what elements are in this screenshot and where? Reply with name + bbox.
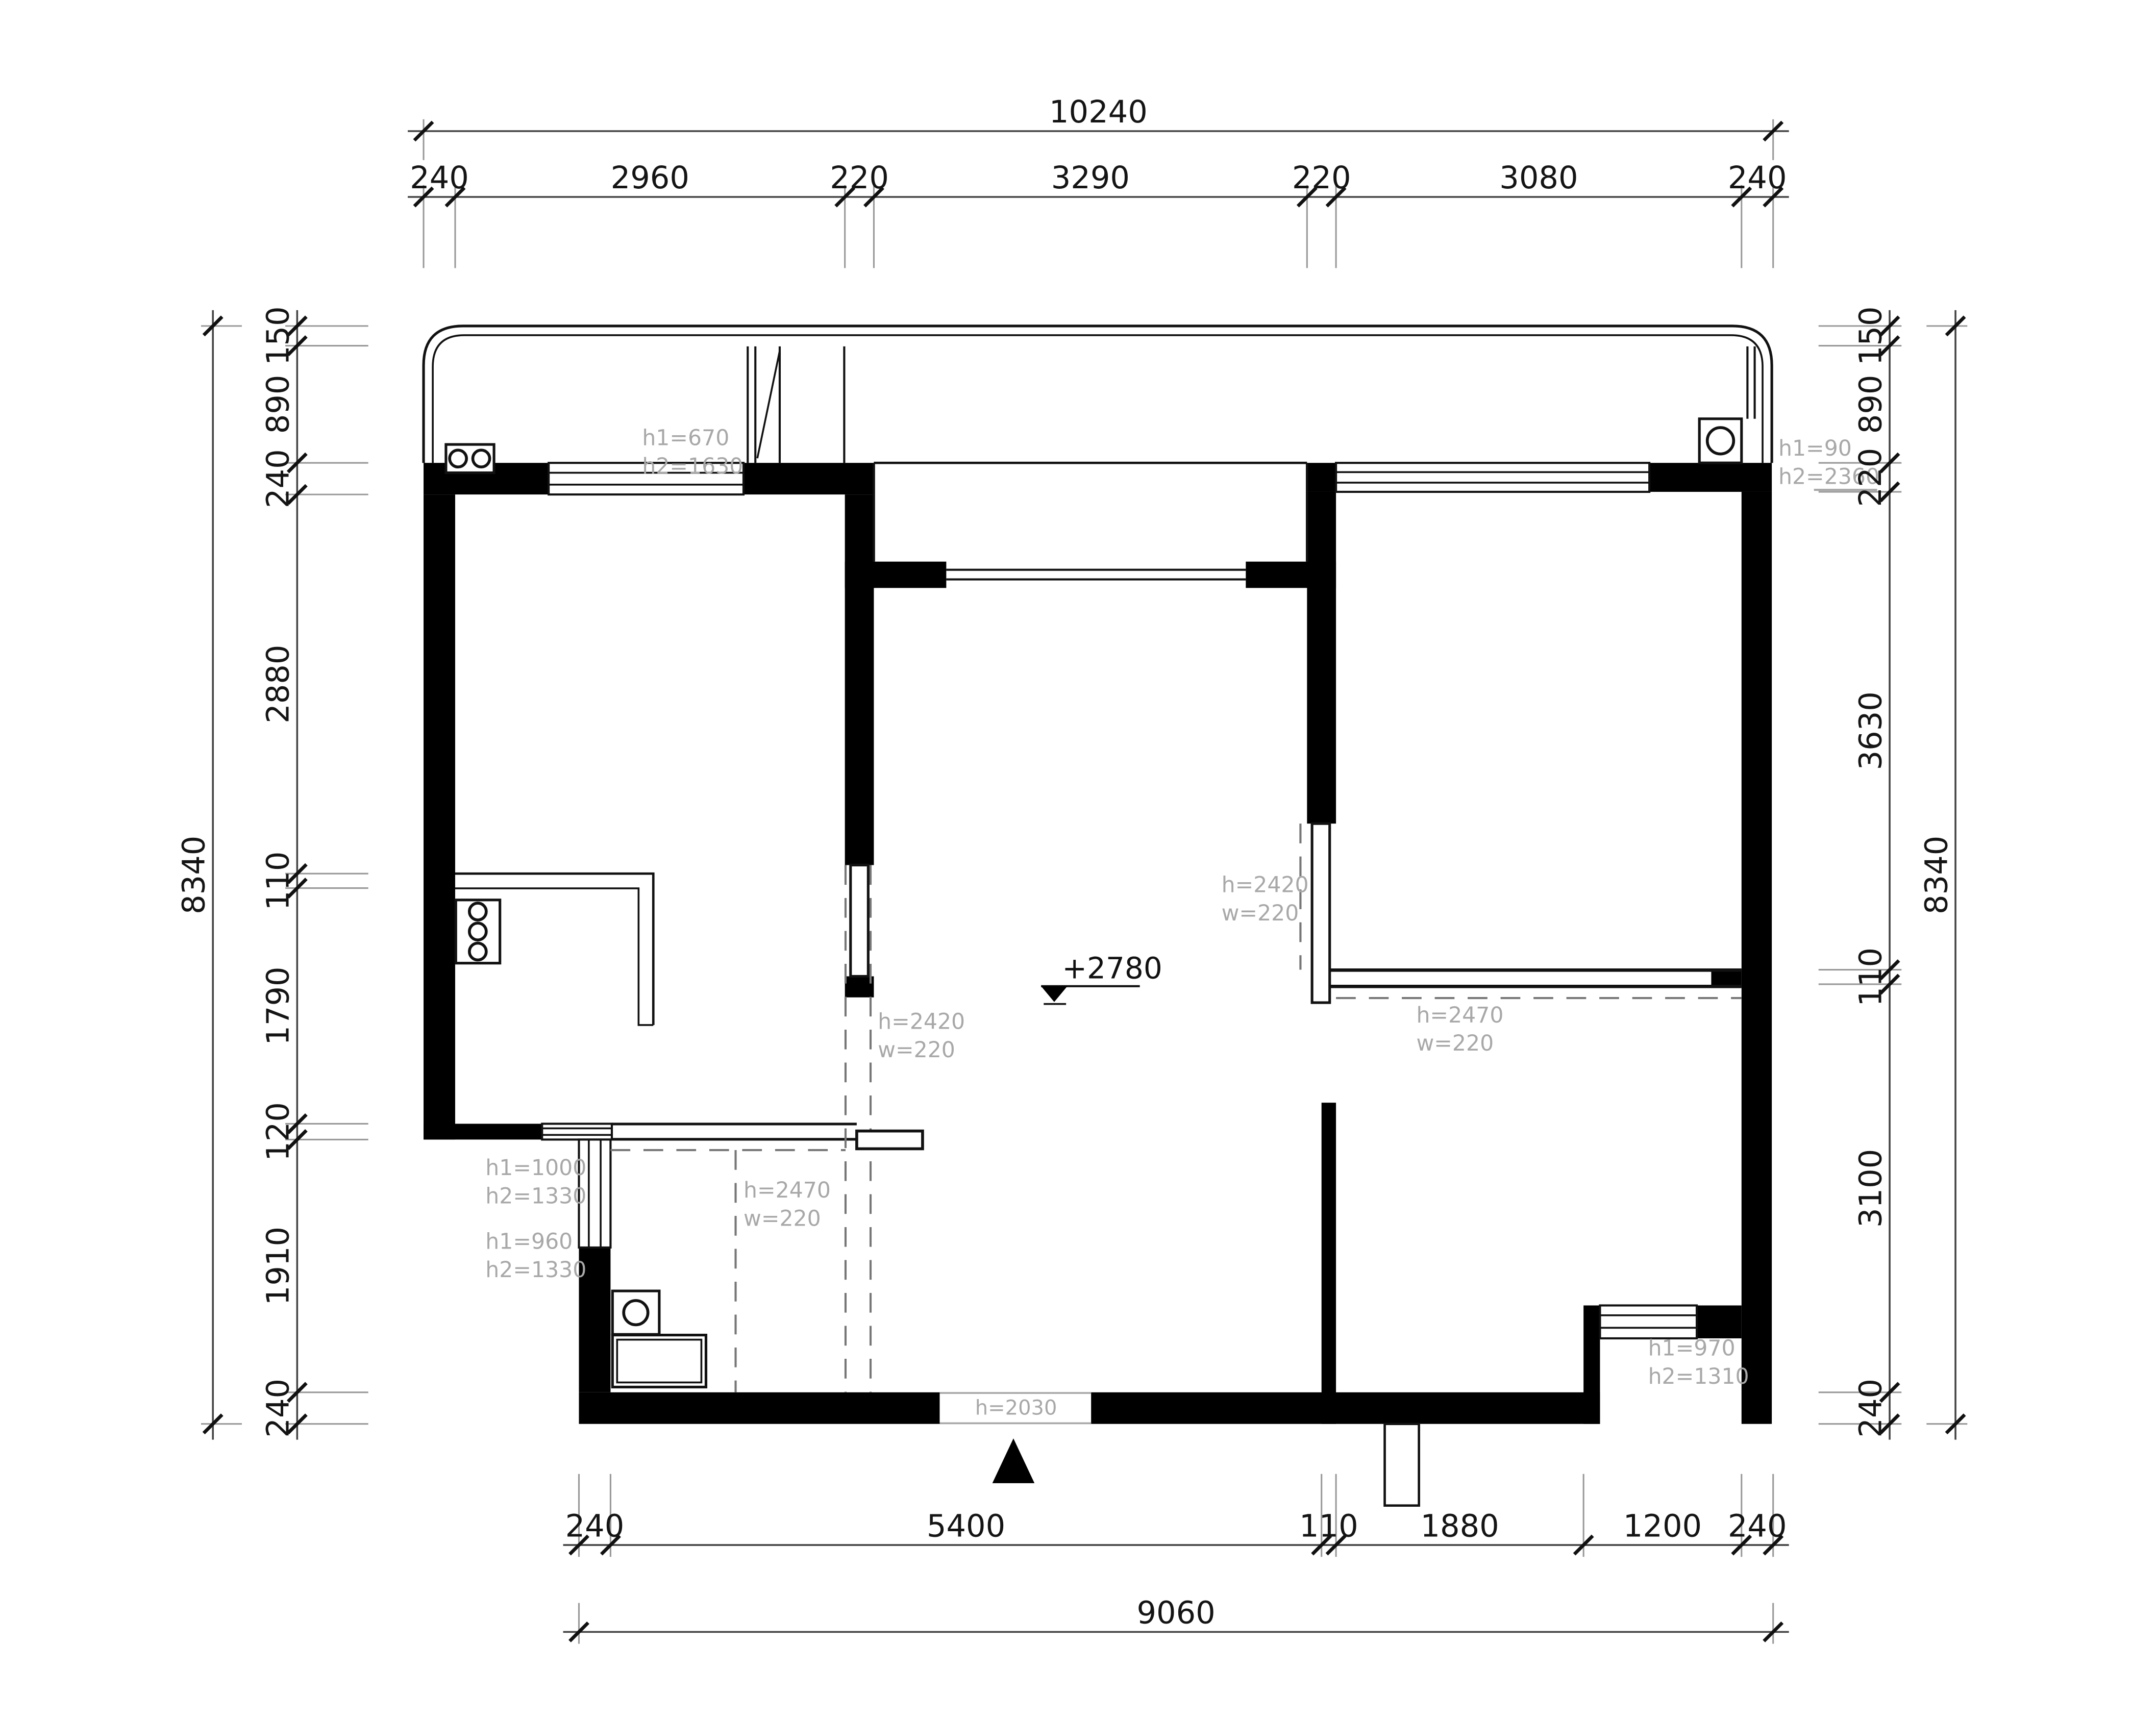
- wall: [1711, 970, 1741, 987]
- opening-balcony-kitchen: h1=670: [642, 425, 729, 451]
- wall: [1091, 1392, 1600, 1424]
- bottom-segments-value: 5400: [927, 1508, 1005, 1544]
- window: [1600, 1305, 1697, 1338]
- opening-hall-bedroom1: w=220: [1222, 901, 1299, 926]
- opening-kitchen-hall: h=2420: [878, 1009, 965, 1035]
- left-segments-value: 2880: [261, 645, 296, 724]
- top-segments-value: 3080: [1499, 160, 1578, 196]
- right-segments-value: 3630: [1853, 691, 1889, 770]
- wall: [1307, 463, 1336, 492]
- window-bath-upper: h2=1330: [485, 1184, 586, 1209]
- fixture-box: [456, 900, 500, 963]
- fixture-box: [1312, 824, 1330, 1003]
- left-segments-value: 150: [261, 306, 296, 365]
- plan-line: [757, 351, 780, 458]
- right-segments-value: 240: [1853, 1379, 1889, 1438]
- wall: [579, 1392, 939, 1424]
- fixture-box: [851, 865, 869, 976]
- bottom-segments-value: 110: [1299, 1508, 1358, 1544]
- fixture-box: [857, 1131, 923, 1149]
- top-segments-value: 220: [830, 160, 889, 196]
- left-overall-value: 8340: [176, 836, 212, 914]
- opening-bedroom2-door: w=220: [1416, 1031, 1494, 1056]
- window-bath-upper: h1=1000: [485, 1155, 586, 1181]
- top-segments-value: 240: [1728, 160, 1787, 196]
- window-bedroom2-bay: h2=1310: [1648, 1364, 1749, 1389]
- window-bath-lower: h1=960: [485, 1229, 573, 1255]
- wall: [845, 562, 947, 588]
- balcony-railing: [433, 335, 1763, 463]
- wall: [1697, 1305, 1742, 1338]
- wall: [1742, 492, 1772, 1424]
- wall: [845, 494, 874, 865]
- top-overall-value: 10240: [1049, 94, 1148, 130]
- left-segments-value: 110: [261, 852, 296, 911]
- opening-bath-door: w=220: [744, 1206, 821, 1231]
- window: [1336, 463, 1649, 492]
- balcony-railing: [424, 326, 1772, 463]
- opening-bedroom2-door: h=2470: [1416, 1003, 1503, 1028]
- left-segments-value: 120: [261, 1102, 296, 1161]
- opening-balcony-kitchen: h2=1630: [642, 454, 743, 479]
- fixture-box: [1385, 1424, 1419, 1506]
- floor-plan-canvas: +2780h1=670h2=1630h1=90h2=2360h=2420w=22…: [0, 0, 2156, 1720]
- level-marker-triangle: [1041, 986, 1068, 1002]
- bottom-segments-value: 1880: [1420, 1508, 1499, 1544]
- window-bath-lower: h2=1330: [485, 1257, 586, 1283]
- opening-kitchen-hall: w=220: [878, 1037, 955, 1063]
- top-segments-value: 220: [1292, 160, 1351, 196]
- opening-balcony-right: h1=90: [1778, 436, 1852, 461]
- right-segments-value: 3100: [1853, 1149, 1889, 1228]
- wall: [1322, 1103, 1336, 1424]
- fixture-box: [1699, 419, 1742, 463]
- top-segments-value: 240: [410, 160, 469, 196]
- left-segments-value: 1910: [261, 1227, 296, 1305]
- opening-hall-bedroom1: h=2420: [1222, 872, 1309, 898]
- wall: [1307, 492, 1336, 824]
- top-segments-value: 2960: [611, 160, 689, 196]
- wall: [1649, 463, 1772, 492]
- bottom-overall-value: 9060: [1136, 1596, 1215, 1631]
- window: [542, 1124, 612, 1139]
- entrance-arrow: [993, 1438, 1035, 1483]
- right-overall-value: 8340: [1919, 836, 1954, 914]
- top-segments-value: 3290: [1051, 160, 1130, 196]
- right-segments-value: 110: [1853, 948, 1889, 1007]
- fixture-box: [446, 444, 494, 472]
- fixture-box: [612, 1291, 659, 1334]
- wall: [424, 494, 455, 1139]
- left-segments-value: 240: [261, 449, 296, 508]
- right-segments-value: 220: [1853, 448, 1889, 507]
- bottom-segments-value: 1200: [1623, 1508, 1702, 1544]
- fixture-box: [617, 1340, 701, 1383]
- bottom-segments-value: 240: [1728, 1508, 1787, 1544]
- level-marker-text: +2780: [1062, 951, 1162, 985]
- wall: [424, 1124, 542, 1139]
- right-segments-value: 150: [1853, 306, 1889, 365]
- left-segments-value: 1790: [261, 966, 296, 1045]
- left-segments-value: 890: [261, 375, 296, 434]
- right-segments-value: 890: [1853, 375, 1889, 434]
- wall: [744, 463, 874, 494]
- floor-plan-page: +2780h1=670h2=1630h1=90h2=2360h=2420w=22…: [0, 0, 2156, 1720]
- opening-bath-door: h=2470: [744, 1178, 831, 1203]
- bottom-segments-value: 240: [565, 1508, 625, 1544]
- entrance-door-height: h=2030: [975, 1397, 1057, 1420]
- window-bedroom2-bay: h1=970: [1648, 1336, 1736, 1361]
- wall: [1583, 1305, 1600, 1424]
- left-segments-value: 240: [261, 1379, 296, 1438]
